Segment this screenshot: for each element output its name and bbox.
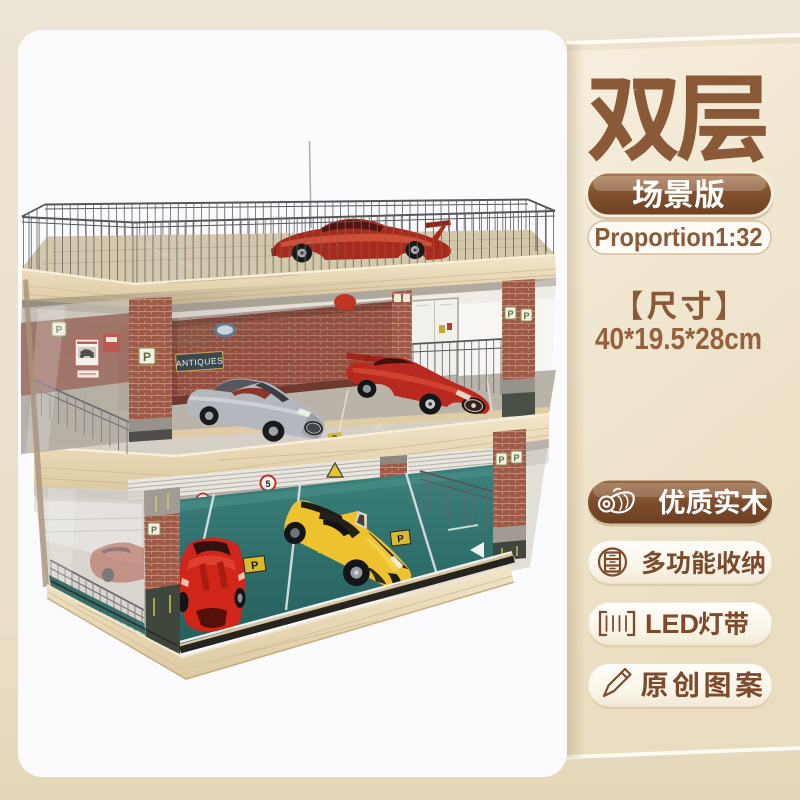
svg-text:P: P [498, 455, 504, 465]
svg-text:LED: LED [645, 609, 699, 639]
svg-text:Proportion1:32: Proportion1:32 [595, 222, 763, 252]
svg-text:P: P [523, 311, 529, 321]
svg-text:5: 5 [265, 479, 270, 489]
svg-text:P: P [513, 453, 519, 463]
svg-text:P: P [507, 309, 513, 319]
svg-text:P: P [143, 350, 151, 364]
svg-text:P: P [151, 525, 157, 535]
svg-text:P: P [250, 560, 259, 573]
svg-text:40*19.5*28cm: 40*19.5*28cm [595, 321, 762, 356]
